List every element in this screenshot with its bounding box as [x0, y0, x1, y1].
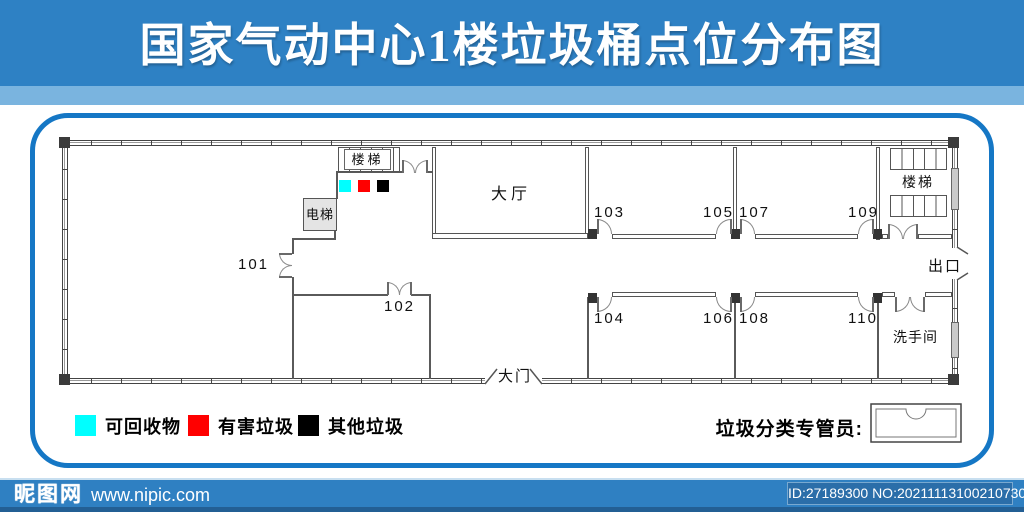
supervisor-label: 垃圾分类专管员:: [640, 414, 863, 441]
footer-bottom-strip: [0, 507, 1024, 512]
legend-label: 有害垃圾: [218, 413, 294, 439]
footer-bar: 昵图网www.nipic.com ID:27189300 NO:20211113…: [0, 478, 1024, 507]
legend-label: 可回收物: [105, 413, 181, 439]
legend-swatch-hazardous: [188, 415, 209, 436]
legend-swatch-other: [298, 415, 319, 436]
legend-item-recyclable: 可回收物: [75, 414, 181, 437]
legend-item-hazardous: 有害垃圾: [188, 414, 294, 437]
legend-label: 其他垃圾: [328, 413, 404, 439]
poster: 国家气动中心1楼垃圾桶点位分布图: [0, 0, 1024, 512]
image-id-badge: ID:27189300 NO:20211113100210730103: [787, 482, 1013, 505]
footer: 昵图网www.nipic.com ID:27189300 NO:20211113…: [0, 478, 1024, 512]
supervisor-signature-box: [871, 404, 961, 442]
site-url: www.nipic.com: [91, 485, 210, 505]
site-logo: 昵图网www.nipic.com: [14, 481, 210, 508]
site-name: 昵图网: [14, 483, 83, 506]
legend-swatch-recyclable: [75, 415, 96, 436]
legend-item-other: 其他垃圾: [298, 414, 404, 437]
